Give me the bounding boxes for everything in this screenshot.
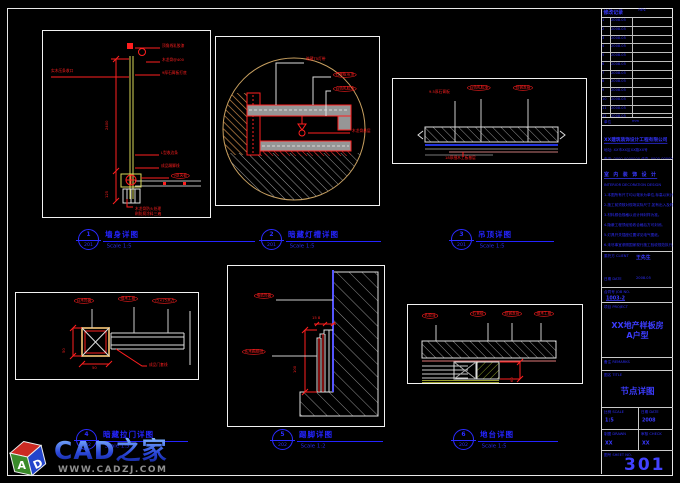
rev-date: 2008.05 bbox=[611, 71, 624, 75]
note-line: 4.隐蔽工程须经验收合格后方可封闭。 bbox=[604, 222, 644, 227]
remarks-box: 备注 REMARKS bbox=[602, 358, 673, 371]
detail-sheet: 201 bbox=[80, 242, 96, 247]
view-title: 地台详图 bbox=[478, 429, 558, 442]
detail-sheet: 202 bbox=[274, 442, 290, 447]
project-name: XX地产样板房 A户型 bbox=[602, 321, 673, 342]
rev-desc bbox=[633, 79, 673, 87]
rev-desc bbox=[633, 106, 673, 114]
rev-row: 3 2008.05 bbox=[602, 36, 673, 45]
detail-sheet: 201 bbox=[263, 242, 279, 247]
rev-desc bbox=[633, 36, 673, 44]
dimension-text: 15 8 bbox=[312, 316, 320, 320]
view-scale: Scale 1:5 bbox=[103, 242, 240, 249]
rev-no: 9 bbox=[602, 88, 607, 92]
detail-bubble: 1 201 bbox=[78, 229, 99, 250]
annotation: 木龙骨基层 bbox=[352, 129, 371, 133]
brand-row: 室 内 装 饰 设 计 bbox=[604, 171, 657, 179]
linework-skirting bbox=[228, 266, 384, 426]
company-block: XX建筑装饰设计工程有限公司 地址: XX市XX区XX路XX号 电话: 0000… bbox=[602, 126, 673, 160]
rev-no: 7 bbox=[602, 71, 607, 75]
notes-list: 1.本图所有尺寸均以毫米为单位,标高以米计。2.施工前须核对现场实际尺寸,如有出… bbox=[604, 192, 671, 251]
cadzj-cube-icon: A D bbox=[8, 438, 48, 480]
rev-no: 8 bbox=[602, 79, 607, 83]
annotation-oval: 实木踢脚线 bbox=[242, 349, 266, 355]
scale-label: 比例 SCALE bbox=[604, 409, 624, 414]
rev-desc bbox=[633, 27, 673, 35]
view-title: 墙身详图 bbox=[103, 229, 255, 242]
rev-no: 1 bbox=[602, 18, 607, 22]
drawn-label: 制图 DRAWN bbox=[604, 431, 626, 436]
rev-desc bbox=[633, 97, 673, 105]
company-name: XX建筑装饰设计工程有限公司 bbox=[604, 135, 667, 144]
drawing-title-value: 节点详图 bbox=[602, 385, 673, 397]
detail-number: 1 bbox=[79, 231, 98, 238]
detail-sheet: 201 bbox=[453, 242, 469, 247]
cadzj-watermark: A D CAD之家 WWW.CADZJ.COM bbox=[8, 438, 168, 480]
rev-desc bbox=[633, 53, 673, 61]
date-cell: 日期 DATE 2008 bbox=[638, 408, 673, 429]
scale-cell: 比例 SCALE 1:5 bbox=[602, 408, 638, 429]
rev-row: 7 2008.05 bbox=[602, 71, 673, 80]
rev-date: 2008.05 bbox=[611, 79, 624, 83]
view-label-3: 3 201 吊顶详图 Scale 1:5 bbox=[451, 229, 554, 250]
remarks-label: 备注 REMARKS bbox=[604, 359, 630, 364]
rev-date: 2008.05 bbox=[611, 88, 624, 92]
detail-view-skirting: 墙纸饰面 实木踢脚线 100 15 8 bbox=[227, 265, 385, 427]
rev-date: 2008.05 bbox=[611, 97, 624, 101]
note-line: 1.本图所有尺寸均以毫米为单位,标高以米计。 bbox=[604, 192, 644, 197]
annotation: 9厚石膏板打底 bbox=[162, 71, 187, 75]
job-label: 合同号 JOB NO. bbox=[604, 289, 630, 294]
annotation: 木龙骨防火处理 bbox=[135, 207, 161, 211]
brand-text: CAD之家 bbox=[54, 438, 168, 463]
view-label-1: 1 201 墙身详图 Scale 1:5 bbox=[78, 229, 255, 250]
dimension-text: 50 bbox=[62, 348, 66, 353]
detail-number: 5 bbox=[273, 431, 292, 438]
annotation-oval: 白色乳胶漆 bbox=[467, 85, 491, 91]
linework-ceiling-section bbox=[393, 79, 586, 163]
rev-date: 2008.05 bbox=[611, 62, 624, 66]
rev-desc bbox=[633, 62, 673, 70]
drawing-title-label: 图名 TITLE bbox=[604, 372, 622, 377]
view-label-5: 5 202 踢脚详图 Scale 1:2 bbox=[272, 429, 383, 450]
rev-row: 5 2008.05 bbox=[602, 53, 673, 62]
dimension-text: 125 bbox=[105, 191, 109, 198]
job-box: 合同号 JOB NO. 1003-2 bbox=[602, 288, 673, 303]
date-label: 日期 DATE bbox=[604, 276, 622, 281]
note-line: 2.施工前须核对现场实际尺寸,如有出入及时反馈。 bbox=[604, 202, 644, 207]
project-name-line2: A户型 bbox=[602, 331, 673, 341]
rev-row: 9 2008.05 bbox=[602, 88, 673, 97]
note-line: 6.未尽事宜参照国家现行施工验收规范执行。 bbox=[604, 242, 644, 247]
brand-url: WWW.CADZJ.COM bbox=[58, 465, 168, 475]
detail-number: 6 bbox=[454, 431, 473, 438]
view-scale: Scale 1:5 bbox=[476, 242, 546, 249]
linework-wall-section bbox=[43, 31, 210, 217]
annotation: 9.5厚石膏板 bbox=[429, 90, 450, 94]
view-title: 踢脚详图 bbox=[297, 429, 383, 442]
annotation: 成品门套线 bbox=[149, 363, 168, 367]
sheet-number-value: 301 bbox=[624, 455, 666, 474]
annotation: 刷防腐涂料三遍 bbox=[135, 212, 161, 216]
annotation: 顶角线乳胶漆 bbox=[162, 44, 184, 48]
rev-no: 10 bbox=[602, 97, 607, 101]
annotation-oval: 轻钢龙骨 bbox=[513, 85, 533, 91]
project-name-line1: XX地产样板房 bbox=[602, 321, 673, 331]
rev-header: 修改记录 bbox=[602, 8, 623, 15]
rev-row: 11 2008.05 bbox=[602, 106, 673, 115]
detail-sheet: 202 bbox=[455, 442, 471, 447]
annotation: 18厚细木工板基层 bbox=[445, 156, 476, 160]
job-value: 1003-2 bbox=[606, 295, 625, 301]
rev-desc bbox=[633, 44, 673, 52]
annotation-oval: 白木饰面 bbox=[74, 298, 94, 304]
cube-letter-a: A bbox=[17, 459, 26, 472]
view-title: 暗藏灯槽详图 bbox=[286, 229, 381, 242]
cad-sheet: 实木压条收口 顶角线乳胶漆 木龙骨@400 9厚石膏板打底 L型收边条 成品踢脚… bbox=[0, 0, 680, 483]
rev-no: 11 bbox=[602, 106, 607, 110]
rev-no: 4 bbox=[602, 44, 607, 48]
rev-no: 2 bbox=[602, 27, 607, 31]
detail-number: 2 bbox=[262, 231, 281, 238]
rev-rows: 1 2008.05 2 2008.05 3 2008.05 bbox=[602, 18, 673, 118]
rev-date: 2008.05 bbox=[611, 36, 624, 40]
check-cell: 审核 CHECK XX bbox=[638, 429, 673, 451]
annotation: 实木压条收口 bbox=[51, 69, 73, 73]
rev-header-en: REV. bbox=[630, 8, 646, 13]
linework-cove-light bbox=[216, 37, 379, 205]
view-scale: Scale 1:5 bbox=[286, 242, 372, 249]
annotation-oval: 9厚夹板 bbox=[171, 173, 189, 179]
rev-no: 5 bbox=[602, 53, 607, 57]
unit-value: mm bbox=[632, 119, 639, 123]
drawn-value: XX bbox=[605, 440, 613, 446]
project-box: 项目 PROJECT XX地产样板房 A户型 bbox=[602, 303, 673, 358]
rev-date: 2008.05 bbox=[611, 18, 624, 22]
project-label: 项目 PROJECT bbox=[604, 304, 628, 309]
detail-bubble: 3 201 bbox=[451, 229, 472, 250]
date2-value: 2008 bbox=[642, 417, 656, 423]
unit-row: 单位 mm bbox=[602, 118, 673, 126]
annotation-oval: 轻钢龙骨 bbox=[502, 311, 522, 317]
rev-desc bbox=[633, 88, 673, 96]
annotation: 暗藏T5灯带 bbox=[306, 57, 326, 61]
notes-subtitle: INTERIOR DECORATION DESIGN bbox=[604, 183, 644, 187]
sheet-number-box: 图号 SHEET NO. 301 bbox=[602, 451, 673, 474]
rev-row: 1 2008.05 bbox=[602, 18, 673, 27]
rev-desc bbox=[633, 71, 673, 79]
annotation-oval: 细木工板 bbox=[534, 311, 554, 317]
drawn-cell: 制图 DRAWN XX bbox=[602, 429, 638, 451]
rev-row: 10 2008.05 bbox=[602, 97, 673, 106]
client-box: 委托方 CLIENT 王先生 日期 DATE 2008.05 bbox=[602, 252, 673, 288]
linework-door-jamb bbox=[16, 293, 198, 379]
date2-label: 日期 DATE bbox=[641, 409, 659, 414]
drawing-title-box: 图名 TITLE 节点详图 bbox=[602, 371, 673, 408]
annotation: 成品踢脚线 bbox=[161, 164, 180, 168]
scale-value: 1:5 bbox=[605, 417, 614, 423]
annotation-oval: 细木工板 bbox=[118, 296, 138, 302]
detail-view-floor-platform: 乳胶漆 石膏板 轻钢龙骨 细木工板 60 bbox=[407, 304, 583, 384]
info-grid: 比例 SCALE 1:5 日期 DATE 2008 制图 DRAWN XX 审核… bbox=[602, 408, 673, 451]
detail-view-door-jamb: 白木饰面 细木工板 25×25木方 成品门套线 50 50 bbox=[15, 292, 199, 380]
annotation: L型收边条 bbox=[161, 151, 178, 155]
dimension-text: 100 bbox=[293, 366, 297, 373]
view-label-2: 2 201 暗藏灯槽详图 Scale 1:5 bbox=[261, 229, 381, 250]
rev-no: 3 bbox=[602, 36, 607, 40]
company-address: 地址: XX市XX区XX路XX号 bbox=[604, 147, 644, 152]
annotation: 木龙骨@400 bbox=[162, 58, 184, 62]
detail-bubble: 2 201 bbox=[261, 229, 282, 250]
rev-date: 2008.05 bbox=[611, 53, 624, 57]
check-value: XX bbox=[642, 440, 650, 446]
rev-date: 2008.05 bbox=[611, 27, 624, 31]
annotation-oval: 25×25木方 bbox=[152, 298, 177, 304]
note-line: 5.灯具开关插座位置详见电气图纸。 bbox=[604, 232, 644, 237]
revision-table: 修改记录 REV. 1 2008.05 2 2008.05 bbox=[602, 8, 673, 118]
client-value: 王先生 bbox=[636, 253, 651, 261]
unit-label: 单位 bbox=[604, 119, 611, 124]
rev-row: 8 2008.05 bbox=[602, 79, 673, 88]
view-scale: Scale 1:5 bbox=[478, 442, 550, 449]
client-label: 委托方 CLIENT bbox=[604, 253, 629, 258]
rev-desc bbox=[633, 18, 673, 26]
dimension-text: 2400 bbox=[105, 121, 109, 130]
rev-date: 2008.05 bbox=[611, 44, 624, 48]
view-scale: Scale 1:2 bbox=[297, 442, 374, 449]
title-block: 修改记录 REV. 1 2008.05 2 2008.05 bbox=[601, 8, 673, 474]
detail-view-wall-section: 实木压条收口 顶角线乳胶漆 木龙骨@400 9厚石膏板打底 L型收边条 成品踢脚… bbox=[42, 30, 211, 218]
dimension-text: 60 bbox=[510, 377, 514, 382]
rev-date: 2008.05 bbox=[611, 106, 624, 110]
date-value: 2008.05 bbox=[636, 276, 651, 280]
rev-row: 4 2008.05 bbox=[602, 44, 673, 53]
rev-row: 6 2008.05 bbox=[602, 62, 673, 71]
note-line: 3.材料颜色规格以设计师封样为准。 bbox=[604, 212, 644, 217]
detail-bubble: 6 202 bbox=[453, 429, 474, 450]
detail-number: 3 bbox=[452, 231, 471, 238]
detail-view-cove-light: 暗藏T5灯带 石膏板吊顶 白色乳胶漆 木龙骨基层 bbox=[215, 36, 380, 206]
annotation-oval: 墙纸饰面 bbox=[254, 293, 274, 299]
notes-block: 室 内 装 饰 设 计 INTERIOR DECORATION DESIGN 1… bbox=[602, 160, 673, 252]
rev-no: 6 bbox=[602, 62, 607, 66]
view-title: 吊顶详图 bbox=[476, 229, 554, 242]
check-label: 审核 CHECK bbox=[641, 431, 662, 436]
annotation-oval: 白色乳胶漆 bbox=[333, 86, 357, 92]
annotation-oval: 石膏板吊顶 bbox=[333, 72, 357, 78]
detail-bubble: 5 202 bbox=[272, 429, 293, 450]
view-label-6: 6 202 地台详图 Scale 1:5 bbox=[453, 429, 558, 450]
detail-view-ceiling-section: 9.5厚石膏板 白色乳胶漆 轻钢龙骨 18厚细木工板基层 bbox=[392, 78, 587, 164]
rev-row: 2 2008.05 bbox=[602, 27, 673, 36]
dimension-text: 50 bbox=[92, 366, 97, 370]
